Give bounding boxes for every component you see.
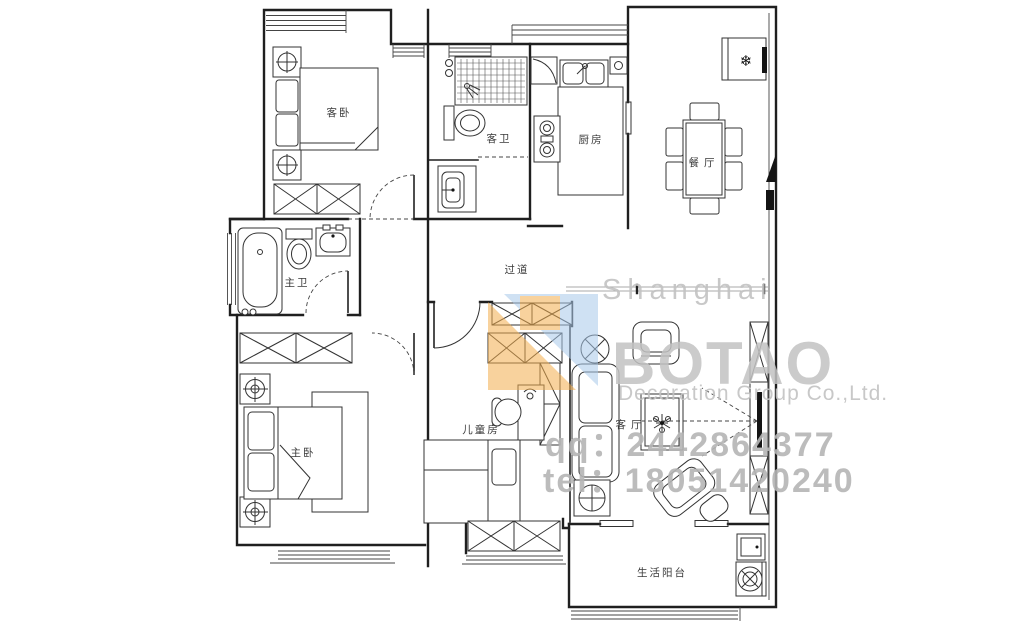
tv-icon: [757, 392, 762, 448]
laundry-sink-icon: [737, 534, 765, 560]
floor-lamp-icon: [581, 335, 609, 363]
room-label-master-bedroom: 主卧: [291, 446, 316, 459]
sink-icon: [316, 225, 350, 256]
kitchen-sink-icon: [560, 60, 608, 87]
bed-icon: [424, 440, 520, 523]
hallway: 过道: [492, 263, 572, 325]
window-bath-top-2: [449, 44, 491, 58]
sofa-icon: [572, 364, 619, 482]
entry-corner-unit: [531, 57, 557, 84]
nightstand-icon: [240, 497, 270, 527]
guest-bedroom: 客卧: [273, 47, 378, 214]
room-label-children-room: 儿童房: [462, 423, 500, 436]
room-label-living-room: 客厅: [616, 418, 647, 431]
washbasin-icon: [438, 166, 476, 212]
stove-icon: [534, 116, 560, 162]
window-guest-bedroom-top: [266, 10, 346, 33]
shower-icon: [446, 57, 528, 105]
master-bath: 主卫: [238, 225, 350, 315]
lounge-chair-icon: [650, 455, 732, 525]
side-table-fan-icon: [574, 480, 610, 516]
shaft-marker-icon: [766, 190, 774, 210]
dining-room: ❄ 餐厅: [666, 38, 767, 214]
wardrobe-icon: [274, 184, 360, 214]
toilet-icon: [286, 229, 312, 269]
watermark-city: Shanghai: [602, 274, 773, 306]
section-marker-icon: [766, 154, 776, 182]
wardrobe-icon: [488, 333, 562, 363]
snowflake-icon: ❄: [740, 52, 753, 70]
master-bedroom: 主卧: [240, 333, 368, 527]
nightstand-icon: [273, 150, 301, 180]
window-master-bath-left: [228, 233, 236, 305]
master-bath-door-arc: [306, 271, 348, 313]
window-children-bay: [462, 556, 566, 564]
balcony: 生活阳台: [637, 534, 766, 596]
fridge-icon: ❄: [722, 38, 767, 80]
room-label-kitchen: 厨房: [579, 133, 604, 146]
hallway-cabinet-icon: [492, 303, 572, 325]
nightstand-icon: [240, 374, 270, 404]
room-label-balcony: 生活阳台: [637, 566, 687, 579]
room-label-hallway: 过道: [505, 263, 530, 276]
master-bedroom-door-arc: [372, 333, 414, 375]
armchair-icon: [633, 322, 679, 364]
room-label-guest-bath: 客卫: [487, 132, 512, 145]
living-room: 客厅: [572, 322, 768, 524]
nightstand-icon: [273, 47, 301, 77]
window-balcony-bottom: [571, 607, 740, 621]
bay-seat-icon: [468, 521, 560, 551]
bathtub-icon: [238, 228, 282, 315]
children-room: 儿童房: [424, 333, 562, 551]
toilet-icon: [444, 106, 485, 140]
children-room-door-arc: [434, 302, 480, 348]
wardrobe-icon: [240, 333, 352, 363]
window-master-bedroom-bottom: [270, 551, 395, 563]
guest-bath: 客卫: [438, 57, 527, 212]
room-label-dining: 餐厅: [689, 156, 720, 169]
room-label-guest-bedroom: 客卧: [327, 106, 352, 119]
desk-icon: [492, 385, 544, 440]
room-label-master-bath: 主卫: [285, 277, 310, 289]
washing-machine-icon: [736, 562, 766, 596]
window-bath-top-1: [393, 44, 424, 58]
coffee-table-icon: [641, 394, 683, 450]
floor-plan-drawing: 客卧 客卫: [0, 0, 1011, 628]
floor-plan-canvas: 客卧 客卫: [0, 0, 1011, 628]
small-appliance-icon: [610, 57, 627, 74]
